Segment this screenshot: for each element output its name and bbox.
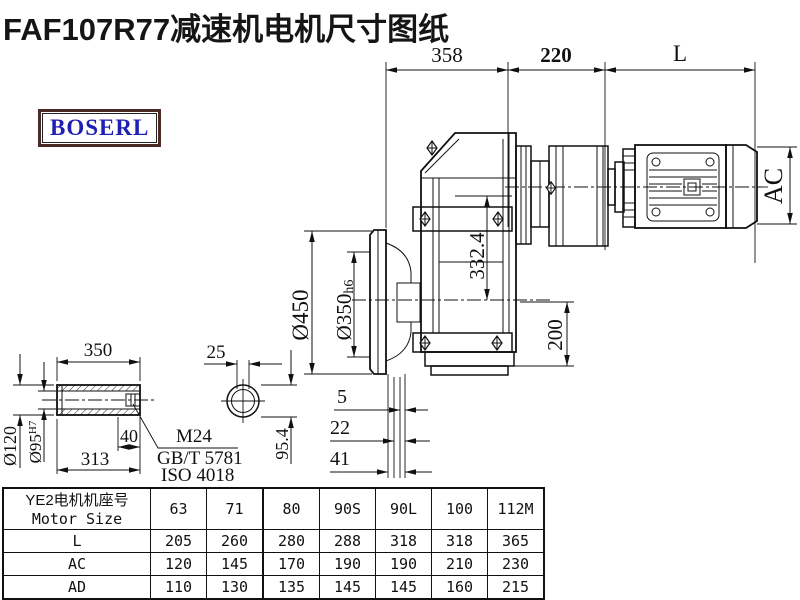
dim-face-offset-2: 22 [330, 417, 350, 439]
table-header-cn: YE2电机机座号 [4, 491, 150, 510]
shaft-end-view: 25 95.4 [204, 342, 297, 464]
table-cell: 145 [207, 553, 264, 576]
dim-gearbox-length: 358 [431, 43, 463, 67]
input-stage [516, 146, 624, 246]
dimension-drawing-page: { "page": { "title": "FAF107R77减速机电机尺寸图纸… [0, 0, 800, 596]
table-column-header: 63 [151, 488, 207, 530]
table-row: L 205 260 280 288 318 318 365 [3, 530, 544, 553]
table-cell: 160 [432, 576, 488, 600]
table-cell: 110 [151, 576, 207, 600]
dim-end-height: 95.4 [272, 428, 292, 460]
table-cell: 205 [151, 530, 207, 553]
dim-face-offset-1: 5 [337, 386, 347, 408]
table-header-row: YE2电机机座号 Motor Size 63 71 80 90S 90L 100… [3, 488, 544, 530]
dim-spigot-diameter-group: Ø350h6 [332, 252, 370, 357]
motor-size-table: YE2电机机座号 Motor Size 63 71 80 90S 90L 100… [2, 487, 545, 600]
table-column-header: 90L [376, 488, 432, 530]
bolt-icon [493, 212, 503, 226]
dim-shaft-length: 350 [84, 340, 113, 361]
table-cell: 170 [263, 553, 320, 576]
dim-ac-group: AC [757, 147, 797, 224]
dim-thread-spec: M24 [176, 426, 212, 447]
bolt-icon [427, 141, 437, 155]
table-row-label: AC [3, 553, 151, 576]
table-cell: 318 [432, 530, 488, 553]
bolt-icon [547, 182, 556, 195]
dim-motor-diameter: AC [759, 168, 788, 204]
dim-axis-to-base: 200 [543, 319, 567, 351]
table-cell: 318 [376, 530, 432, 553]
table-cell: 230 [488, 553, 545, 576]
motor [623, 145, 757, 228]
dim-bore-depth: 313 [81, 449, 110, 470]
dim-bore-tolerance: H7 [27, 420, 39, 434]
table-cell: 190 [376, 553, 432, 576]
dim-thread-depth: 40 [120, 426, 138, 446]
dim-keyway-width: 25 [207, 342, 226, 363]
table-cell: 288 [320, 530, 376, 553]
table-cell: 135 [263, 576, 320, 600]
table-row: AC 120 145 170 190 190 210 230 [3, 553, 544, 576]
dim-axis-to-base-group: 200 [500, 302, 574, 366]
bolt-icon [492, 336, 502, 350]
table-column-header: 100 [432, 488, 488, 530]
table-cell: 215 [488, 576, 545, 600]
dim-motor-length: L [673, 41, 687, 66]
table-header-cell: YE2电机机座号 Motor Size [3, 488, 151, 530]
dim-flange-diameter: Ø450 [288, 289, 313, 340]
table-header-en: Motor Size [4, 510, 150, 528]
table-cell: 120 [151, 553, 207, 576]
table-cell: 145 [320, 576, 376, 600]
table-cell: 280 [263, 530, 320, 553]
dim-face-offset-3: 41 [330, 448, 350, 470]
table-column-header: 80 [263, 488, 320, 530]
dim-axis-distance: 332.4 [465, 232, 489, 280]
table-cell: 260 [207, 530, 264, 553]
dim-adapter-length: 220 [540, 43, 572, 67]
dim-bore-value: Ø95 [26, 434, 45, 463]
dim-spigot-diameter: Ø350h6 [332, 280, 357, 341]
standard-2: ISO 4018 [161, 465, 234, 486]
table-column-header: 112M [488, 488, 545, 530]
table-cell: 190 [320, 553, 376, 576]
table-column-header: 71 [207, 488, 264, 530]
table-column-header: 90S [320, 488, 376, 530]
table-row-label: AD [3, 576, 151, 600]
table-cell: 130 [207, 576, 264, 600]
dim-hub-diameter: Ø120 [0, 426, 20, 466]
dim-spigot-tolerance: h6 [342, 280, 357, 294]
face-offset-dimensions: 5 22 41 [330, 386, 432, 472]
table-row: AD 110 130 135 145 145 160 215 [3, 576, 544, 600]
table-cell: 145 [376, 576, 432, 600]
table-cell: 210 [432, 553, 488, 576]
top-dimensions: 358 220 L [386, 41, 755, 263]
dim-spigot-value: Ø350 [332, 294, 356, 341]
table-row-label: L [3, 530, 151, 553]
dim-bore-diameter: Ø95H7 [26, 420, 45, 463]
table-cell: 365 [488, 530, 545, 553]
fan-cover [726, 145, 757, 228]
